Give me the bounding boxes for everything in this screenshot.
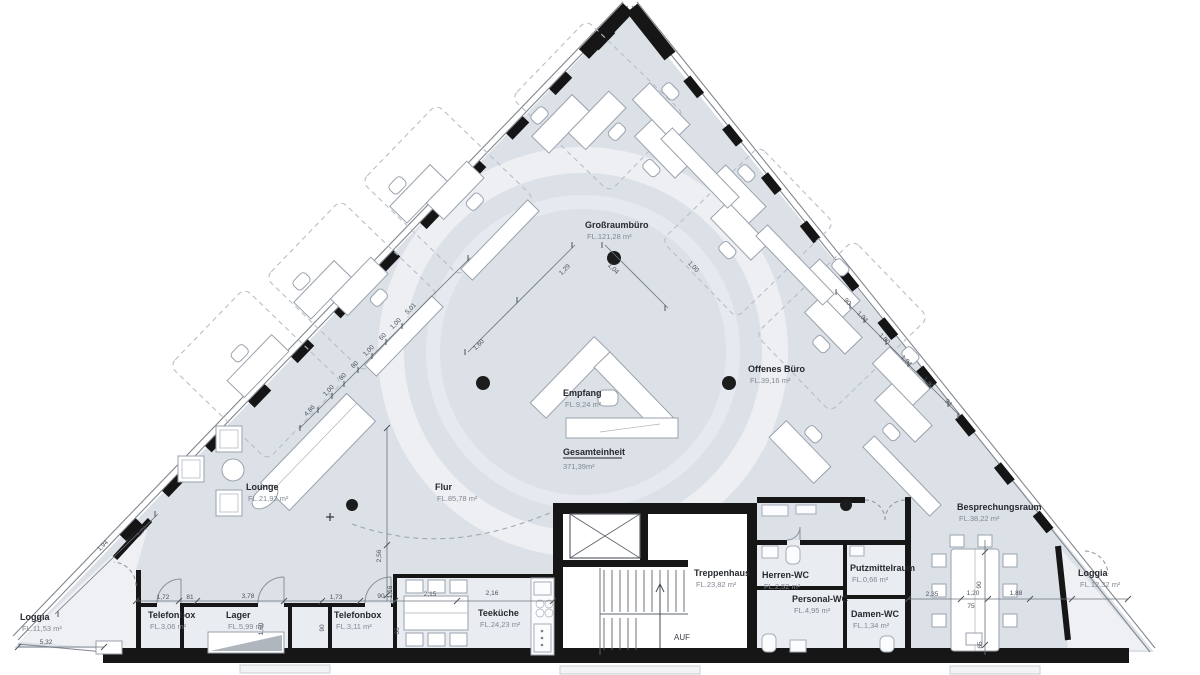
room-label: Telefonbox [148,610,195,620]
storage-ramp [208,632,284,653]
dimension-label: 3,78 [242,593,255,600]
room-label: Lounge [246,482,279,492]
room-area: FL.38,22 m² [959,514,1000,523]
dimension-label: 1,73 [330,594,343,601]
room-area: FL.3,11 m² [336,622,372,631]
elevator [570,514,640,558]
dimension-label: 1,60 [258,622,265,635]
room-label: Loggia [1078,568,1108,578]
room-area: FL.21,92 m² [248,494,289,503]
kitchen-sink [534,582,551,595]
room-label: Telefonbox [334,610,381,620]
room-area: FL.9,24 m² [565,400,602,409]
room-area: FL.11,53 m² [22,624,62,633]
floor-plan-canvas: Großraumbüro FL.121,28 m² Offenes Büro F… [0,0,1200,675]
dimension-label: 2,16 [486,590,499,597]
dimension-label: 2,56 [376,549,383,562]
floor-plan-page: Großraumbüro FL.121,28 m² Offenes Büro F… [0,0,1200,675]
stair-direction-label: AUF [674,633,690,642]
dimension-label: 1,88 [1010,590,1023,597]
sill [96,641,122,654]
room-label: Personal-WC [792,594,849,604]
dimension-label: 1,16 [387,585,394,598]
room-area: FL.3,06 m² [150,622,187,631]
room-area: FL.1,34 m² [853,621,890,630]
dimension-label: 90 [976,581,983,589]
room-area: FL.24,23 m² [480,620,521,629]
dimension-label: 2,15 [424,591,437,598]
room-area: FL.2,52 m² [764,582,801,591]
dimension-label: 75 [967,603,975,610]
room-label: Treppenhaus [694,568,750,578]
room-area: FL.85,78 m² [437,494,478,503]
room-label: Herren-WC [762,570,810,580]
room-label: Damen-WC [851,609,900,619]
total-area-value: 371,39m² [563,462,595,471]
total-area-label: Gesamteinheit [563,447,625,457]
room-label: Loggia [20,612,50,622]
dimension-label: 90 [377,593,385,600]
room-label: Putzmittelraum [850,563,915,573]
dimension-label: 2,35 [926,591,939,598]
dimension-label: 5,32 [40,639,53,646]
room-area: FL.23,82 m² [696,580,737,589]
dimension-label: 1,72 [157,594,170,601]
room-label: Lager [226,610,251,620]
room-label: Empfang [563,388,602,398]
room-label: Offenes Büro [748,364,806,374]
room-label: Großraumbüro [585,220,649,230]
room-area: FL.4,95 m² [794,606,831,615]
room-label: Besprechungsraum [957,502,1042,512]
room-area: FL.12,32 m² [1080,580,1121,589]
dimension-label: 90 [319,624,326,632]
room-area: FL.39,16 m² [750,376,791,385]
dimension-label: 1,20 [967,590,980,597]
room-area: FL.121,28 m² [587,232,632,241]
dimension-label: 81 [186,594,194,601]
dimension-label: 66 [394,627,401,635]
room-area: FL.0,66 m² [852,575,889,584]
room-label: Flur [435,482,452,492]
room-label: Teeküche [478,608,519,618]
dimension-label: 65 [977,641,984,649]
